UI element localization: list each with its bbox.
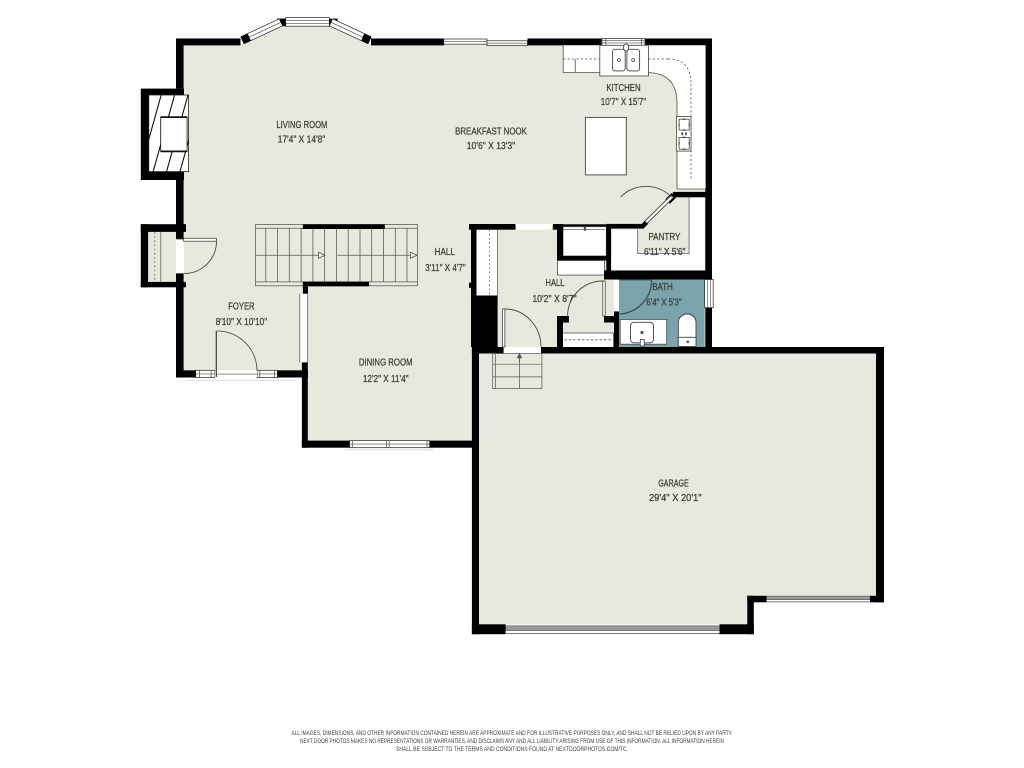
svg-text:29'4" X 20'1": 29'4" X 20'1": [649, 493, 702, 504]
svg-text:ALL IMAGES, DIMENSIONS, AND OT: ALL IMAGES, DIMENSIONS, AND OTHER INFORM…: [292, 731, 733, 737]
svg-text:3'11" X 4'7": 3'11" X 4'7": [425, 263, 466, 274]
svg-text:10'6" X 13'3": 10'6" X 13'3": [467, 141, 516, 152]
svg-text:HALL: HALL: [546, 278, 565, 289]
svg-text:BATH: BATH: [652, 282, 673, 293]
svg-text:FOYER: FOYER: [228, 302, 255, 313]
svg-text:SHALL BE SUBJECT TO THE TERMS: SHALL BE SUBJECT TO THE TERMS AND CONDIT…: [396, 747, 628, 753]
svg-text:6'11" X 5'6": 6'11" X 5'6": [644, 247, 686, 258]
svg-text:NEXT DOOR PHOTOS MAKES NO REPR: NEXT DOOR PHOTOS MAKES NO REPRESENTATION…: [300, 739, 724, 745]
svg-text:12'2" X 11'4": 12'2" X 11'4": [363, 374, 409, 385]
svg-text:DINING ROOM: DINING ROOM: [359, 358, 413, 369]
svg-text:10'2" X 8'7": 10'2" X 8'7": [532, 294, 577, 305]
svg-text:HALL: HALL: [435, 247, 455, 258]
svg-text:GARAGE: GARAGE: [658, 478, 689, 489]
svg-text:10'7" X 15'7": 10'7" X 15'7": [601, 97, 647, 108]
svg-text:8'10" X 10'10": 8'10" X 10'10": [216, 317, 268, 328]
svg-text:KITCHEN: KITCHEN: [606, 83, 640, 94]
svg-text:17'4" X 14'8": 17'4" X 14'8": [278, 135, 326, 146]
svg-text:LIVING ROOM: LIVING ROOM: [276, 120, 327, 131]
svg-text:BREAKFAST NOOK: BREAKFAST NOOK: [455, 126, 527, 137]
svg-text:6'4" X 5'3": 6'4" X 5'3": [647, 298, 682, 309]
svg-text:PANTRY: PANTRY: [648, 232, 680, 243]
